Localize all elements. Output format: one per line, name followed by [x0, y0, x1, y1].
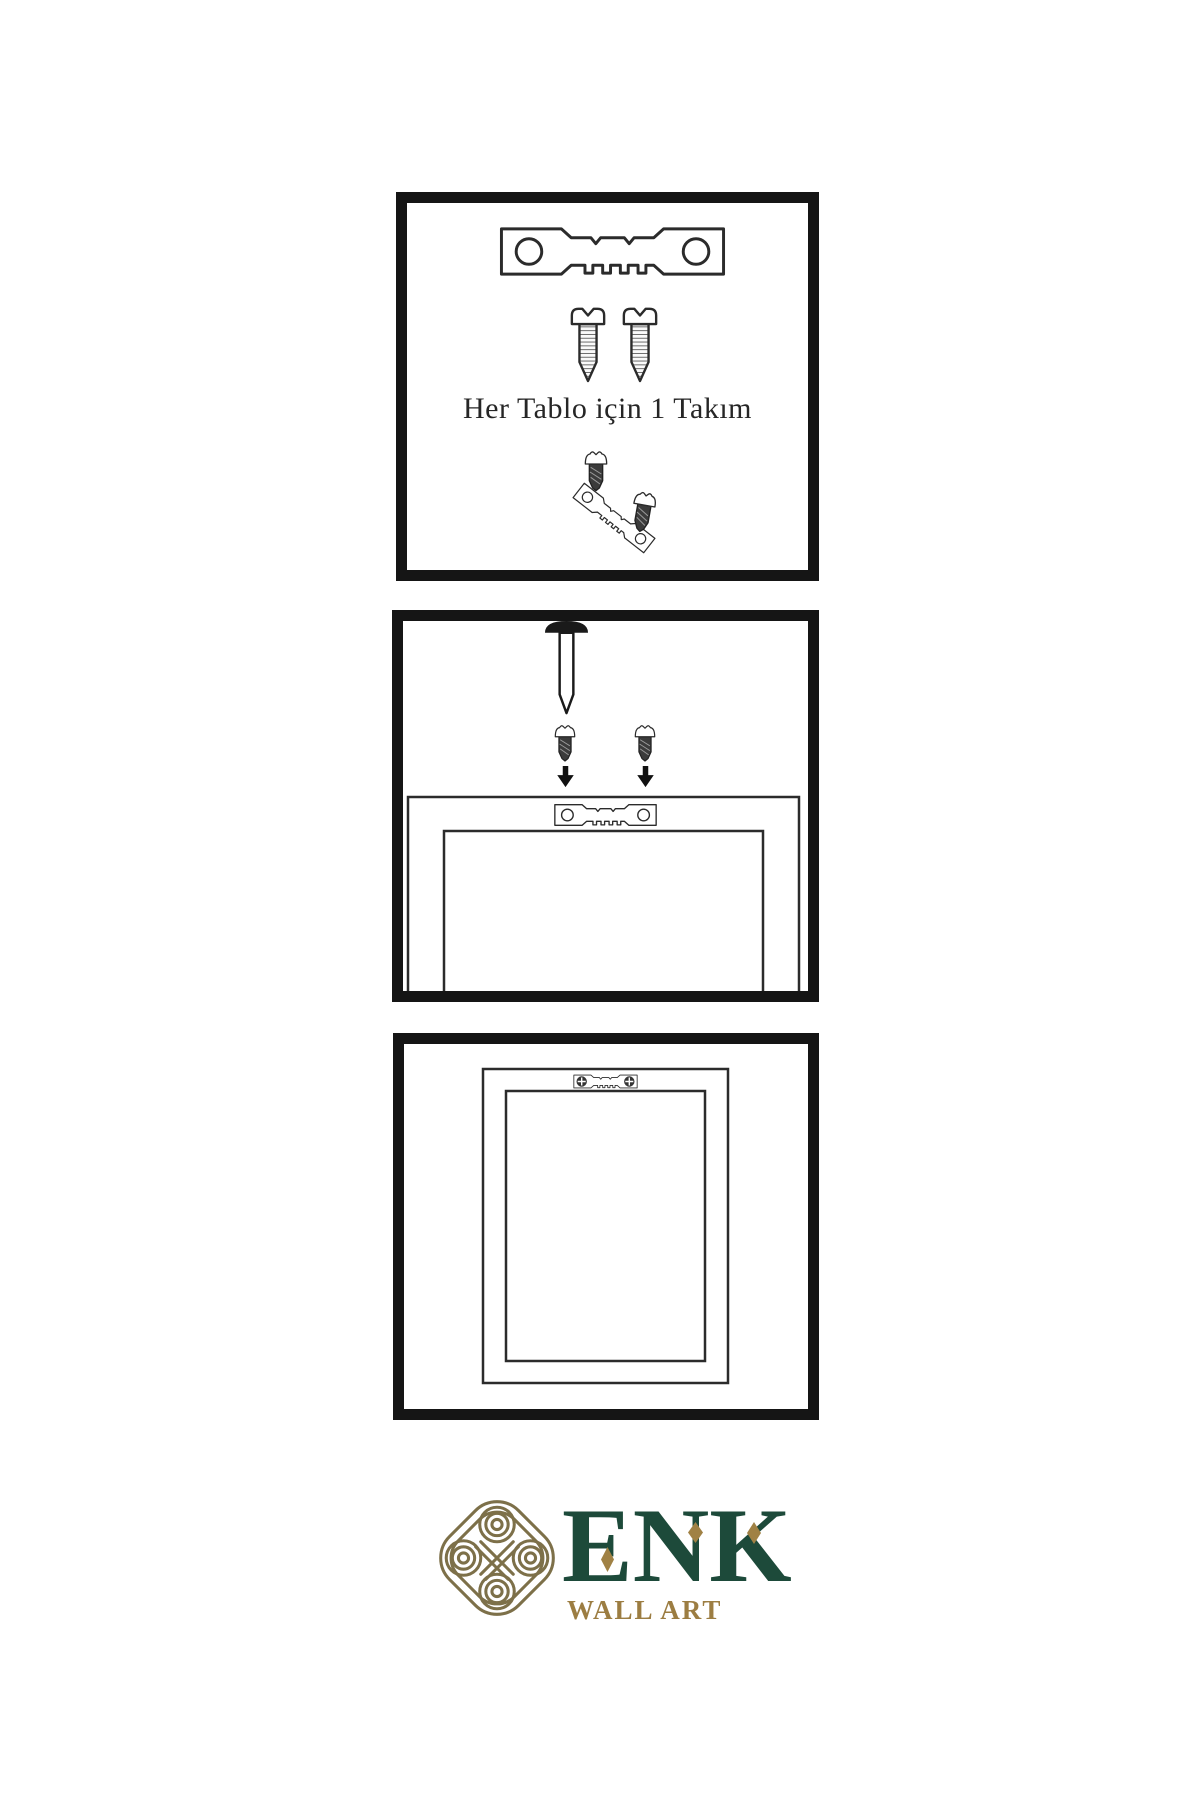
dark-screw-icon: [555, 726, 574, 761]
dark-screw-icon: [635, 726, 654, 761]
installed-screw-head-icon: [577, 1076, 587, 1086]
arrow-down-icon: [637, 766, 654, 787]
wall-nail-icon: [545, 621, 588, 713]
instruction-sheet: Her Tablo için 1 Takım: [0, 0, 1200, 1800]
mounting-drawing: [403, 621, 808, 991]
brand-subtitle: WALL ART: [567, 1595, 827, 1625]
hardware-kit-drawing: [407, 203, 808, 570]
hung-frame-drawing: [404, 1044, 808, 1409]
panel-mounting-instructions: [392, 610, 819, 1002]
dark-screw-icon: [585, 452, 606, 491]
screw-icon: [624, 309, 656, 381]
panel-hardware-kit: Her Tablo için 1 Takım: [396, 192, 819, 581]
screw-icon: [572, 309, 604, 381]
installed-screw-head-icon: [624, 1076, 634, 1086]
knot-logo-icon: [438, 1492, 556, 1624]
panel-hung-frame: [393, 1033, 819, 1420]
brand-name: ENK: [562, 1496, 822, 1606]
frame-inner-edge: [506, 1091, 705, 1361]
arrow-down-icon: [557, 766, 574, 787]
frame-inner-edge: [444, 831, 763, 991]
kit-caption: Her Tablo için 1 Takım: [407, 392, 808, 426]
sawtooth-hanger-icon: [501, 229, 723, 274]
